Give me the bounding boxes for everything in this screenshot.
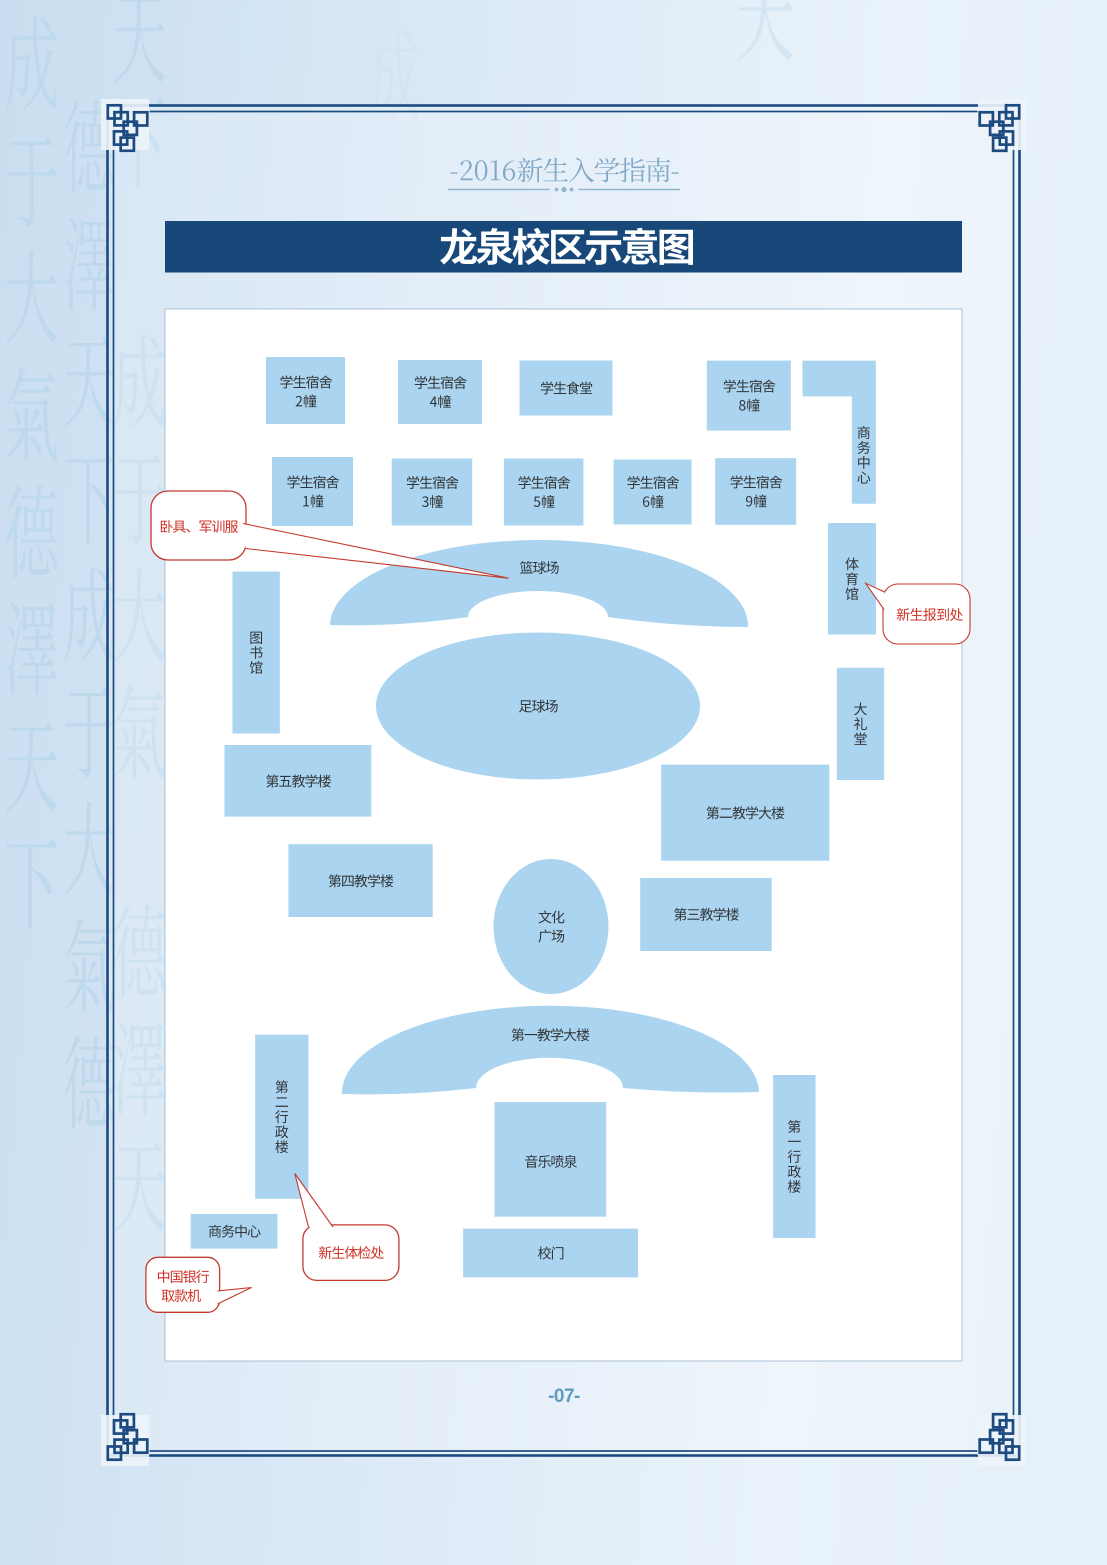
svg-text:-07-: -07- [548, 1386, 580, 1407]
